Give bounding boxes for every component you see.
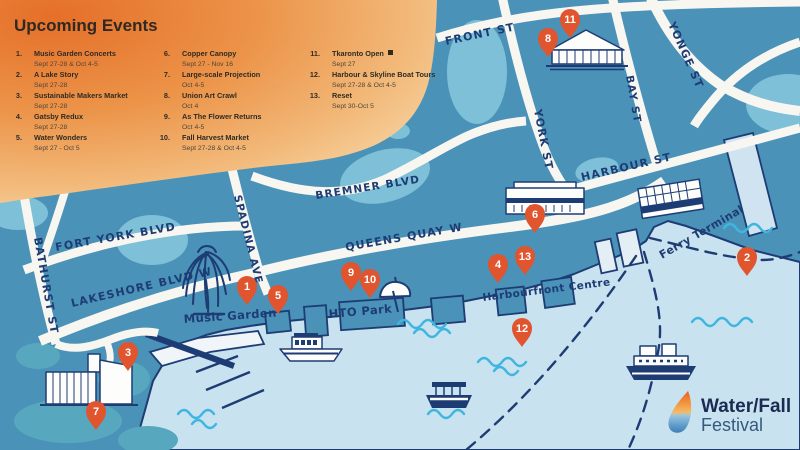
legend-item-num: 4. [16, 112, 22, 121]
legend-title: Upcoming Events [14, 16, 158, 35]
svg-text:5: 5 [275, 290, 281, 302]
legend-item-dates: Sept 27-28 [34, 103, 67, 110]
legend-item-num: 8. [164, 91, 170, 100]
legend-item-num: 10. [160, 133, 170, 142]
legend-item-name: As The Flower Returns [182, 112, 261, 121]
legend-item-name: Harbour & Skyline Boat Tours [332, 70, 435, 79]
legend-item-name: Gatsby Redux [34, 112, 83, 121]
logo-title: Water/Fall [701, 396, 791, 417]
legend-item-dates: Sept 27-28 [34, 82, 67, 89]
festival-map-poster: FRONT ST YONGE ST BAY ST YORK ST HARBOUR… [0, 0, 800, 450]
legend-item-dates: Oct 4 [182, 103, 198, 110]
svg-text:8: 8 [545, 33, 551, 45]
legend-item-dates: Sept 27-28 [34, 124, 67, 131]
svg-text:3: 3 [125, 347, 131, 359]
legend-item-num: 13. [310, 91, 320, 100]
legend-item-name: Reset [332, 91, 352, 100]
legend-item-name: Union Art Crawl [182, 91, 237, 100]
legend-item-name: Water Wonders [34, 133, 87, 142]
map-canvas: FRONT ST YONGE ST BAY ST YORK ST HARBOUR… [0, 0, 800, 450]
legend-item-dates: Sept 30-Oct 5 [332, 103, 374, 110]
legend-item-dates: Sept 27 - Oct 5 [34, 145, 80, 152]
legend-item-name: Fall Harvest Market [182, 133, 249, 142]
legend-item-num: 6. [164, 49, 170, 58]
legend-item-num: 11. [310, 49, 320, 58]
canopy-boat-icon [426, 382, 472, 408]
legend-item-dates: Sept 27-28 & Oct 4-5 [34, 61, 98, 68]
logo-subtitle: Festival [701, 415, 763, 435]
legend-item-dates: Oct 4-5 [182, 82, 205, 89]
legend-item-num: 2. [16, 70, 22, 79]
legend-item-dates: Sept 27-28 & Oct 4-5 [182, 145, 246, 152]
svg-text:6: 6 [532, 209, 538, 221]
legend-item-num: 3. [16, 91, 22, 100]
legend-item-name: Large-scale Projection [182, 70, 260, 79]
svg-text:2: 2 [744, 252, 750, 264]
legend-item-dates: Sept 27 - Nov 16 [182, 61, 233, 68]
svg-text:11: 11 [564, 14, 576, 26]
harbourfront-building [506, 182, 584, 214]
svg-text:9: 9 [348, 267, 354, 279]
legend-item-name: Music Garden Concerts [34, 49, 116, 58]
legend-item-num: 9. [164, 112, 170, 121]
legend-item-num: 5. [16, 133, 22, 142]
svg-text:7: 7 [93, 406, 99, 418]
legend-item-name: A Lake Story [34, 70, 79, 79]
svg-text:13: 13 [519, 251, 531, 263]
svg-text:12: 12 [516, 323, 528, 335]
legend-item-name: Copper Canopy [182, 49, 237, 58]
legend-item-num: 12. [310, 70, 320, 79]
legend-item-name: Tkaronto Open [332, 49, 384, 58]
tkaronto-open-glyph [388, 50, 393, 55]
svg-text:4: 4 [495, 259, 502, 271]
legend-item-dates: Sept 27-28 & Oct 4-5 [332, 82, 396, 89]
legend-item-num: 7. [164, 70, 170, 79]
svg-text:10: 10 [364, 274, 376, 286]
legend-item-dates: Oct 4-5 [182, 124, 205, 131]
legend-item-dates: Sept 27 [332, 61, 356, 68]
legend-item-num: 1. [16, 49, 22, 58]
svg-text:1: 1 [244, 281, 250, 293]
legend-item-name: Sustainable Makers Market [34, 91, 128, 100]
